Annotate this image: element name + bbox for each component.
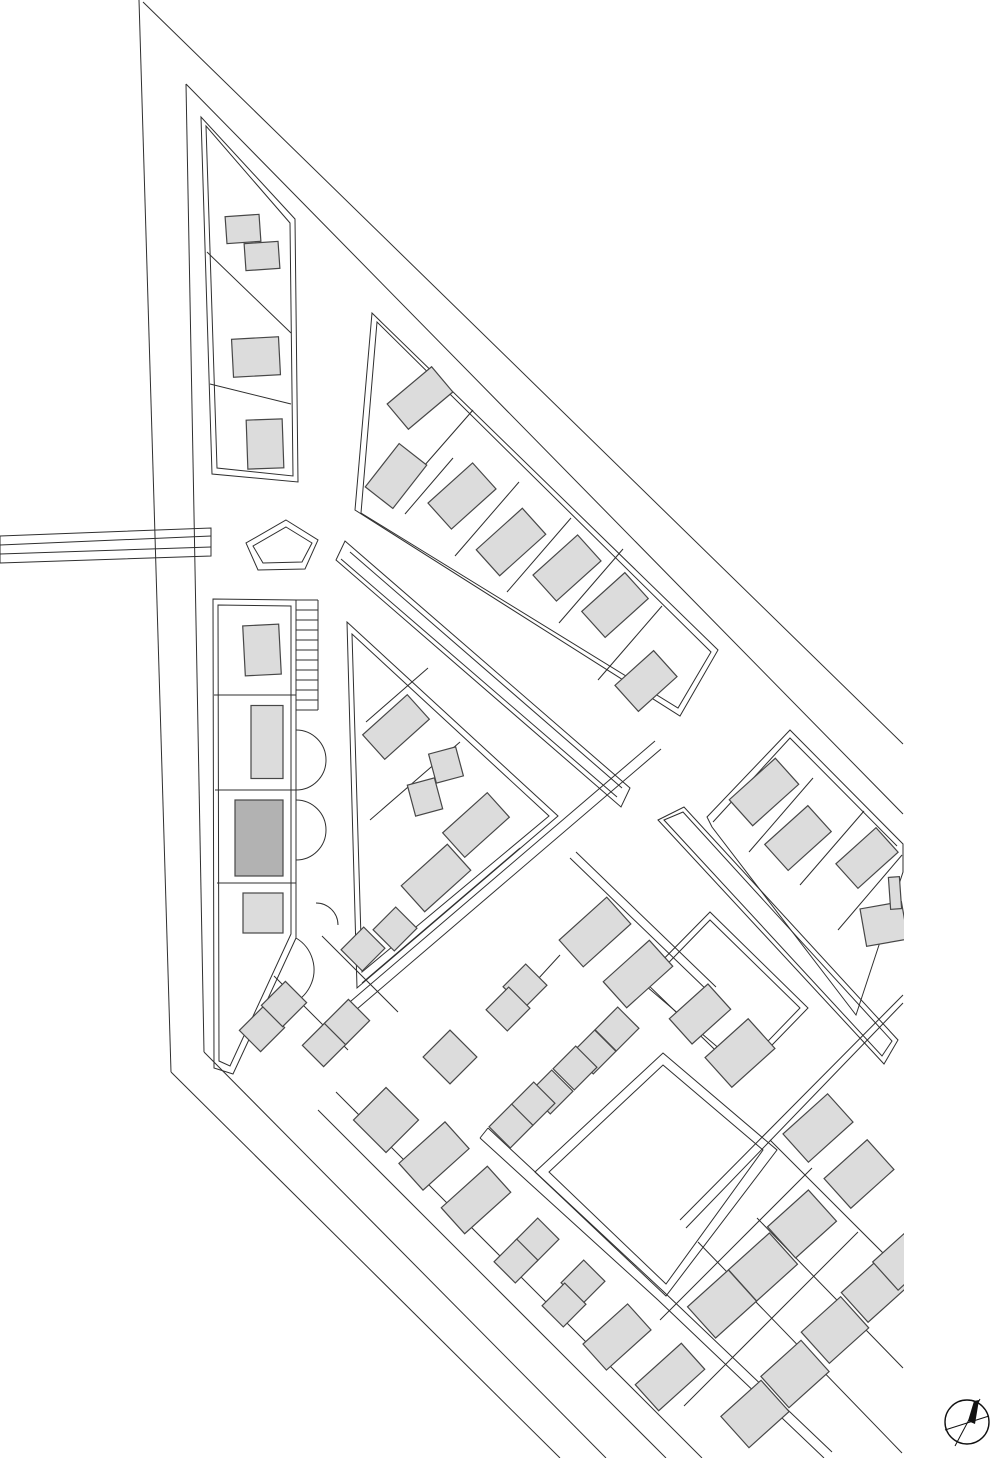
site-boundary-line xyxy=(186,84,204,1052)
site-boundary-line xyxy=(139,0,171,1072)
building xyxy=(243,893,283,933)
building xyxy=(225,214,261,243)
site-plan-page xyxy=(0,0,1000,1458)
building xyxy=(423,1030,477,1084)
building xyxy=(401,844,470,911)
building xyxy=(232,337,281,377)
block-north-outer xyxy=(355,313,718,716)
building xyxy=(533,535,601,601)
building xyxy=(235,800,283,876)
site-plan-canvas xyxy=(0,0,1000,1458)
building xyxy=(407,778,442,816)
building xyxy=(387,367,453,430)
street-strip-upper xyxy=(336,541,630,807)
building xyxy=(428,463,496,529)
building xyxy=(729,758,798,825)
compass-circle xyxy=(945,1400,989,1444)
pentagon-inner xyxy=(253,527,312,563)
landscape-arc xyxy=(296,730,326,790)
building xyxy=(603,940,672,1007)
building xyxy=(888,877,901,910)
building xyxy=(476,508,545,575)
parcel-division-line xyxy=(210,384,291,404)
building xyxy=(353,1087,418,1152)
building xyxy=(824,1140,894,1209)
building xyxy=(246,419,284,469)
street-line xyxy=(0,536,211,545)
building xyxy=(582,573,649,638)
street-line xyxy=(686,1003,903,1228)
building xyxy=(363,695,430,760)
plaza-inner xyxy=(549,1065,763,1284)
landscape-arc xyxy=(296,800,326,860)
building xyxy=(399,1122,469,1190)
street-line xyxy=(330,741,655,1019)
landscape-arc xyxy=(316,903,338,925)
building xyxy=(244,241,280,270)
building xyxy=(783,1094,853,1162)
building xyxy=(705,1019,775,1088)
building xyxy=(443,793,510,858)
street-line xyxy=(318,1110,666,1458)
building xyxy=(635,1343,704,1410)
street-line xyxy=(341,559,617,797)
building xyxy=(251,706,283,779)
building xyxy=(583,1304,651,1370)
block-north-inner xyxy=(361,322,711,708)
drawing-layer xyxy=(0,0,929,1458)
building xyxy=(243,624,282,676)
street-line xyxy=(0,547,211,554)
building xyxy=(615,651,677,712)
building xyxy=(669,984,730,1044)
site-boundary-line xyxy=(186,84,903,814)
road-outline xyxy=(0,528,211,563)
compass-needle xyxy=(968,1400,979,1424)
street-line xyxy=(480,1128,488,1138)
building xyxy=(559,897,631,967)
north-arrow-icon xyxy=(945,1399,989,1446)
building xyxy=(441,1166,510,1233)
